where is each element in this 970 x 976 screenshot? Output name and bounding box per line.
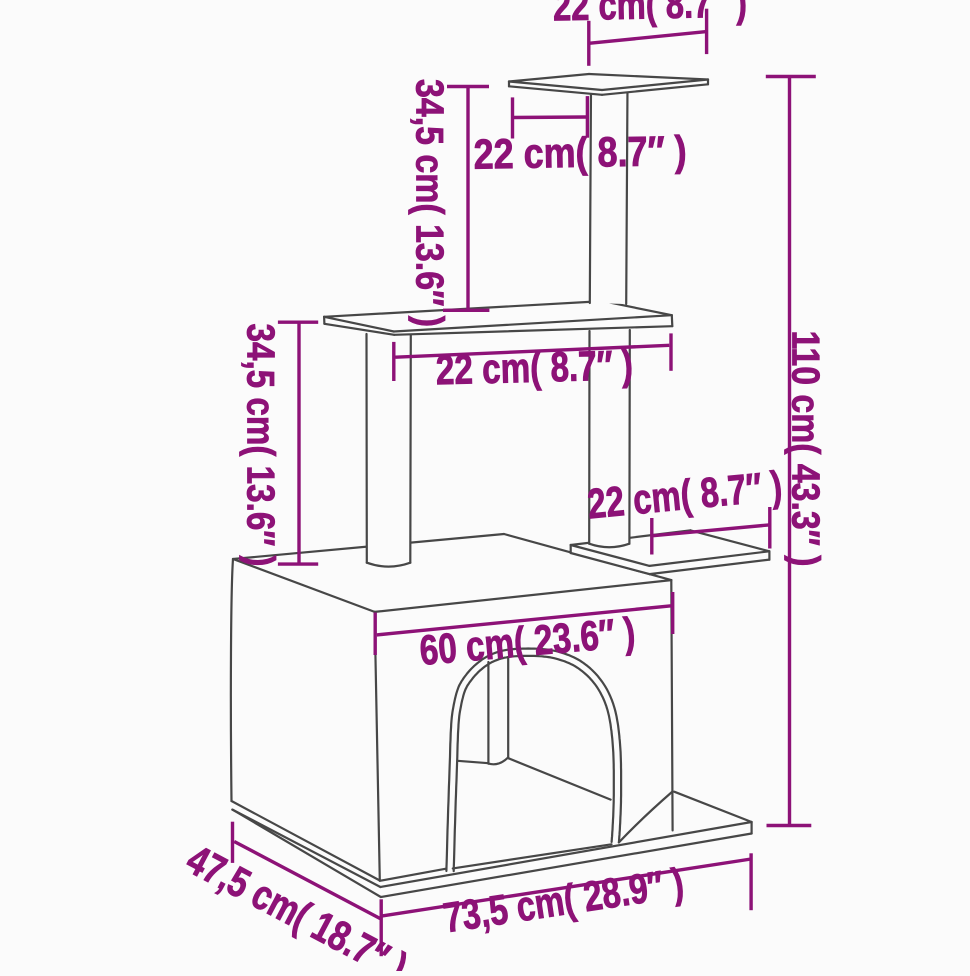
- svg-text:110 cm( 43.3″ ): 110 cm( 43.3″ ): [784, 331, 827, 567]
- svg-text:22 cm( 8.7″ ): 22 cm( 8.7″ ): [435, 341, 633, 393]
- svg-text:34,5 cm( 13.6″ ): 34,5 cm( 13.6″ ): [407, 79, 450, 327]
- svg-text:34,5 cm( 13.6″ ): 34,5 cm( 13.6″ ): [239, 324, 282, 567]
- svg-text:22 cm( 8.7″ ): 22 cm( 8.7″ ): [552, 0, 747, 29]
- svg-text:22 cm( 8.7″ ): 22 cm( 8.7″ ): [473, 127, 687, 178]
